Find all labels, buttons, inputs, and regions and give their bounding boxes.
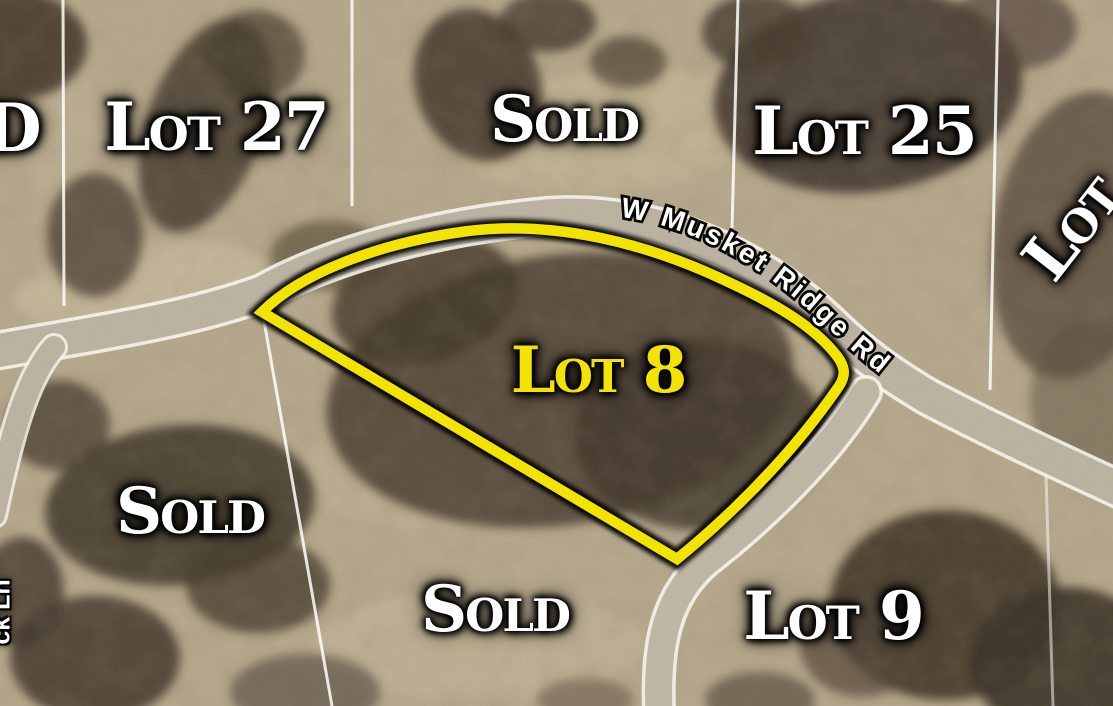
- lot-8-label: Lot 8: [511, 339, 686, 403]
- boundary-line: [63, 0, 64, 306]
- sold-label-left: Sold: [116, 480, 264, 544]
- lot-25-label: Lot 25: [752, 98, 976, 164]
- lot-27-label: Lot 27: [104, 94, 328, 160]
- sold-label-partial: D: [0, 95, 40, 161]
- side-lane-label-partial: ck Ln: [0, 579, 15, 644]
- lot-9-label: Lot 9: [743, 583, 923, 649]
- sold-label-top: Sold: [490, 88, 638, 152]
- sold-label-bottom: Sold: [421, 578, 569, 642]
- aerial-lot-map: W Musket Ridge Rd D Lot 27 Sold Lot 25 L…: [0, 0, 1113, 706]
